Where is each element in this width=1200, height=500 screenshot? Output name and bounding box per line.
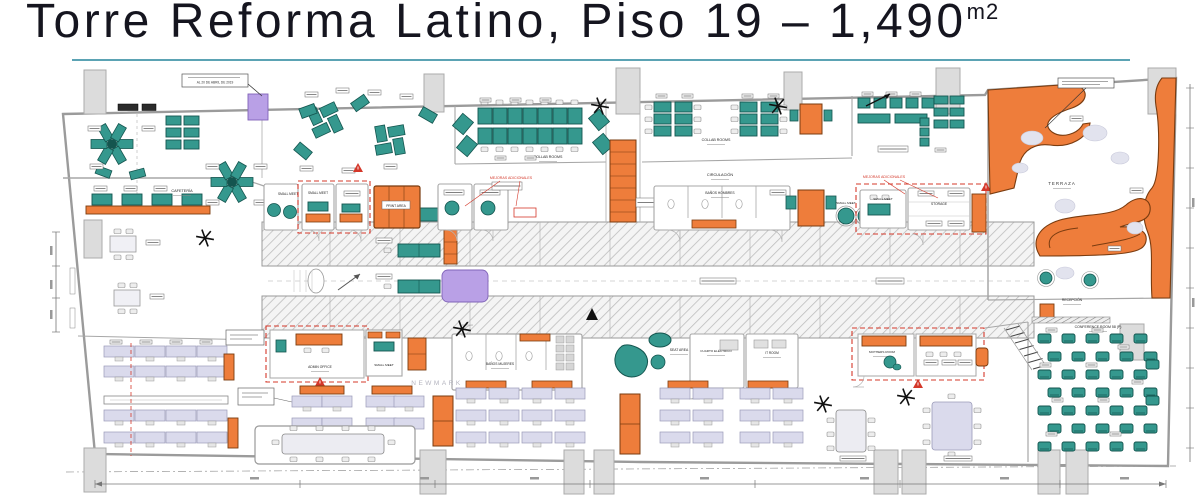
label-circulacion: CIRCULACIÓN (707, 172, 733, 177)
label-it_room: IT ROOM (765, 351, 779, 355)
label-collab_a: COLLAB ROOMS (534, 155, 563, 159)
label-recepcion: RECEPCIÓN (1062, 297, 1083, 302)
label-storage: STORAGE (931, 202, 948, 206)
label-banos_hombres: BAÑOS HOMBRES (705, 190, 735, 195)
label-small_meet_1: SMALL MEET (278, 192, 298, 196)
label-terraza: TERRAZA (1048, 181, 1076, 186)
label-cuarto_electrico: CUARTO ELÉCTRICO (700, 348, 732, 353)
label-small_meet_3: SMALL MEET (873, 197, 893, 201)
title-underline (72, 59, 1130, 61)
label-banos_mujeres: BAÑOS MUJERES (486, 361, 515, 366)
label-small_meet_4: SMALL MEET (836, 201, 856, 205)
title-text: Torre Reforma Latino, Piso 19 – 1,490 (26, 0, 967, 48)
title-superscript: m2 (967, 0, 1000, 24)
label-admin_office: ADMIN OFFICE (308, 365, 332, 369)
floor-plan-svg: CAFETERÍAAL 20 DE ABRIL DE 2019COLLAB RO… (0, 66, 1200, 500)
label-print_area: PRINT AREA (386, 204, 406, 208)
label-cafeteria: CAFETERÍA (171, 189, 193, 193)
label-red_note_1: MEJORAS ADICIONALES (490, 176, 533, 180)
label-newmark: NEWMARK (411, 380, 462, 387)
label-red_note_2: MEJORAS ADICIONALES (863, 175, 906, 179)
label-collab_b: COLLAB ROOMS (702, 138, 731, 142)
label-small_meet_5: SMALL MEET (374, 363, 394, 367)
page-title: Torre Reforma Latino, Piso 19 – 1,490m2 (26, 0, 1186, 49)
floor-plan: CAFETERÍAAL 20 DE ABRIL DE 2019COLLAB RO… (0, 66, 1200, 500)
slide: Torre Reforma Latino, Piso 19 – 1,490m2 … (0, 0, 1200, 500)
label-seat_area: SEAT AREA (670, 348, 689, 352)
label-date_note: AL 20 DE ABRIL DE 2019 (197, 81, 234, 85)
label-mothers_room: MOTHERS ROOM (869, 350, 895, 354)
label-small_meet_2: SMALL MEET (308, 191, 328, 195)
